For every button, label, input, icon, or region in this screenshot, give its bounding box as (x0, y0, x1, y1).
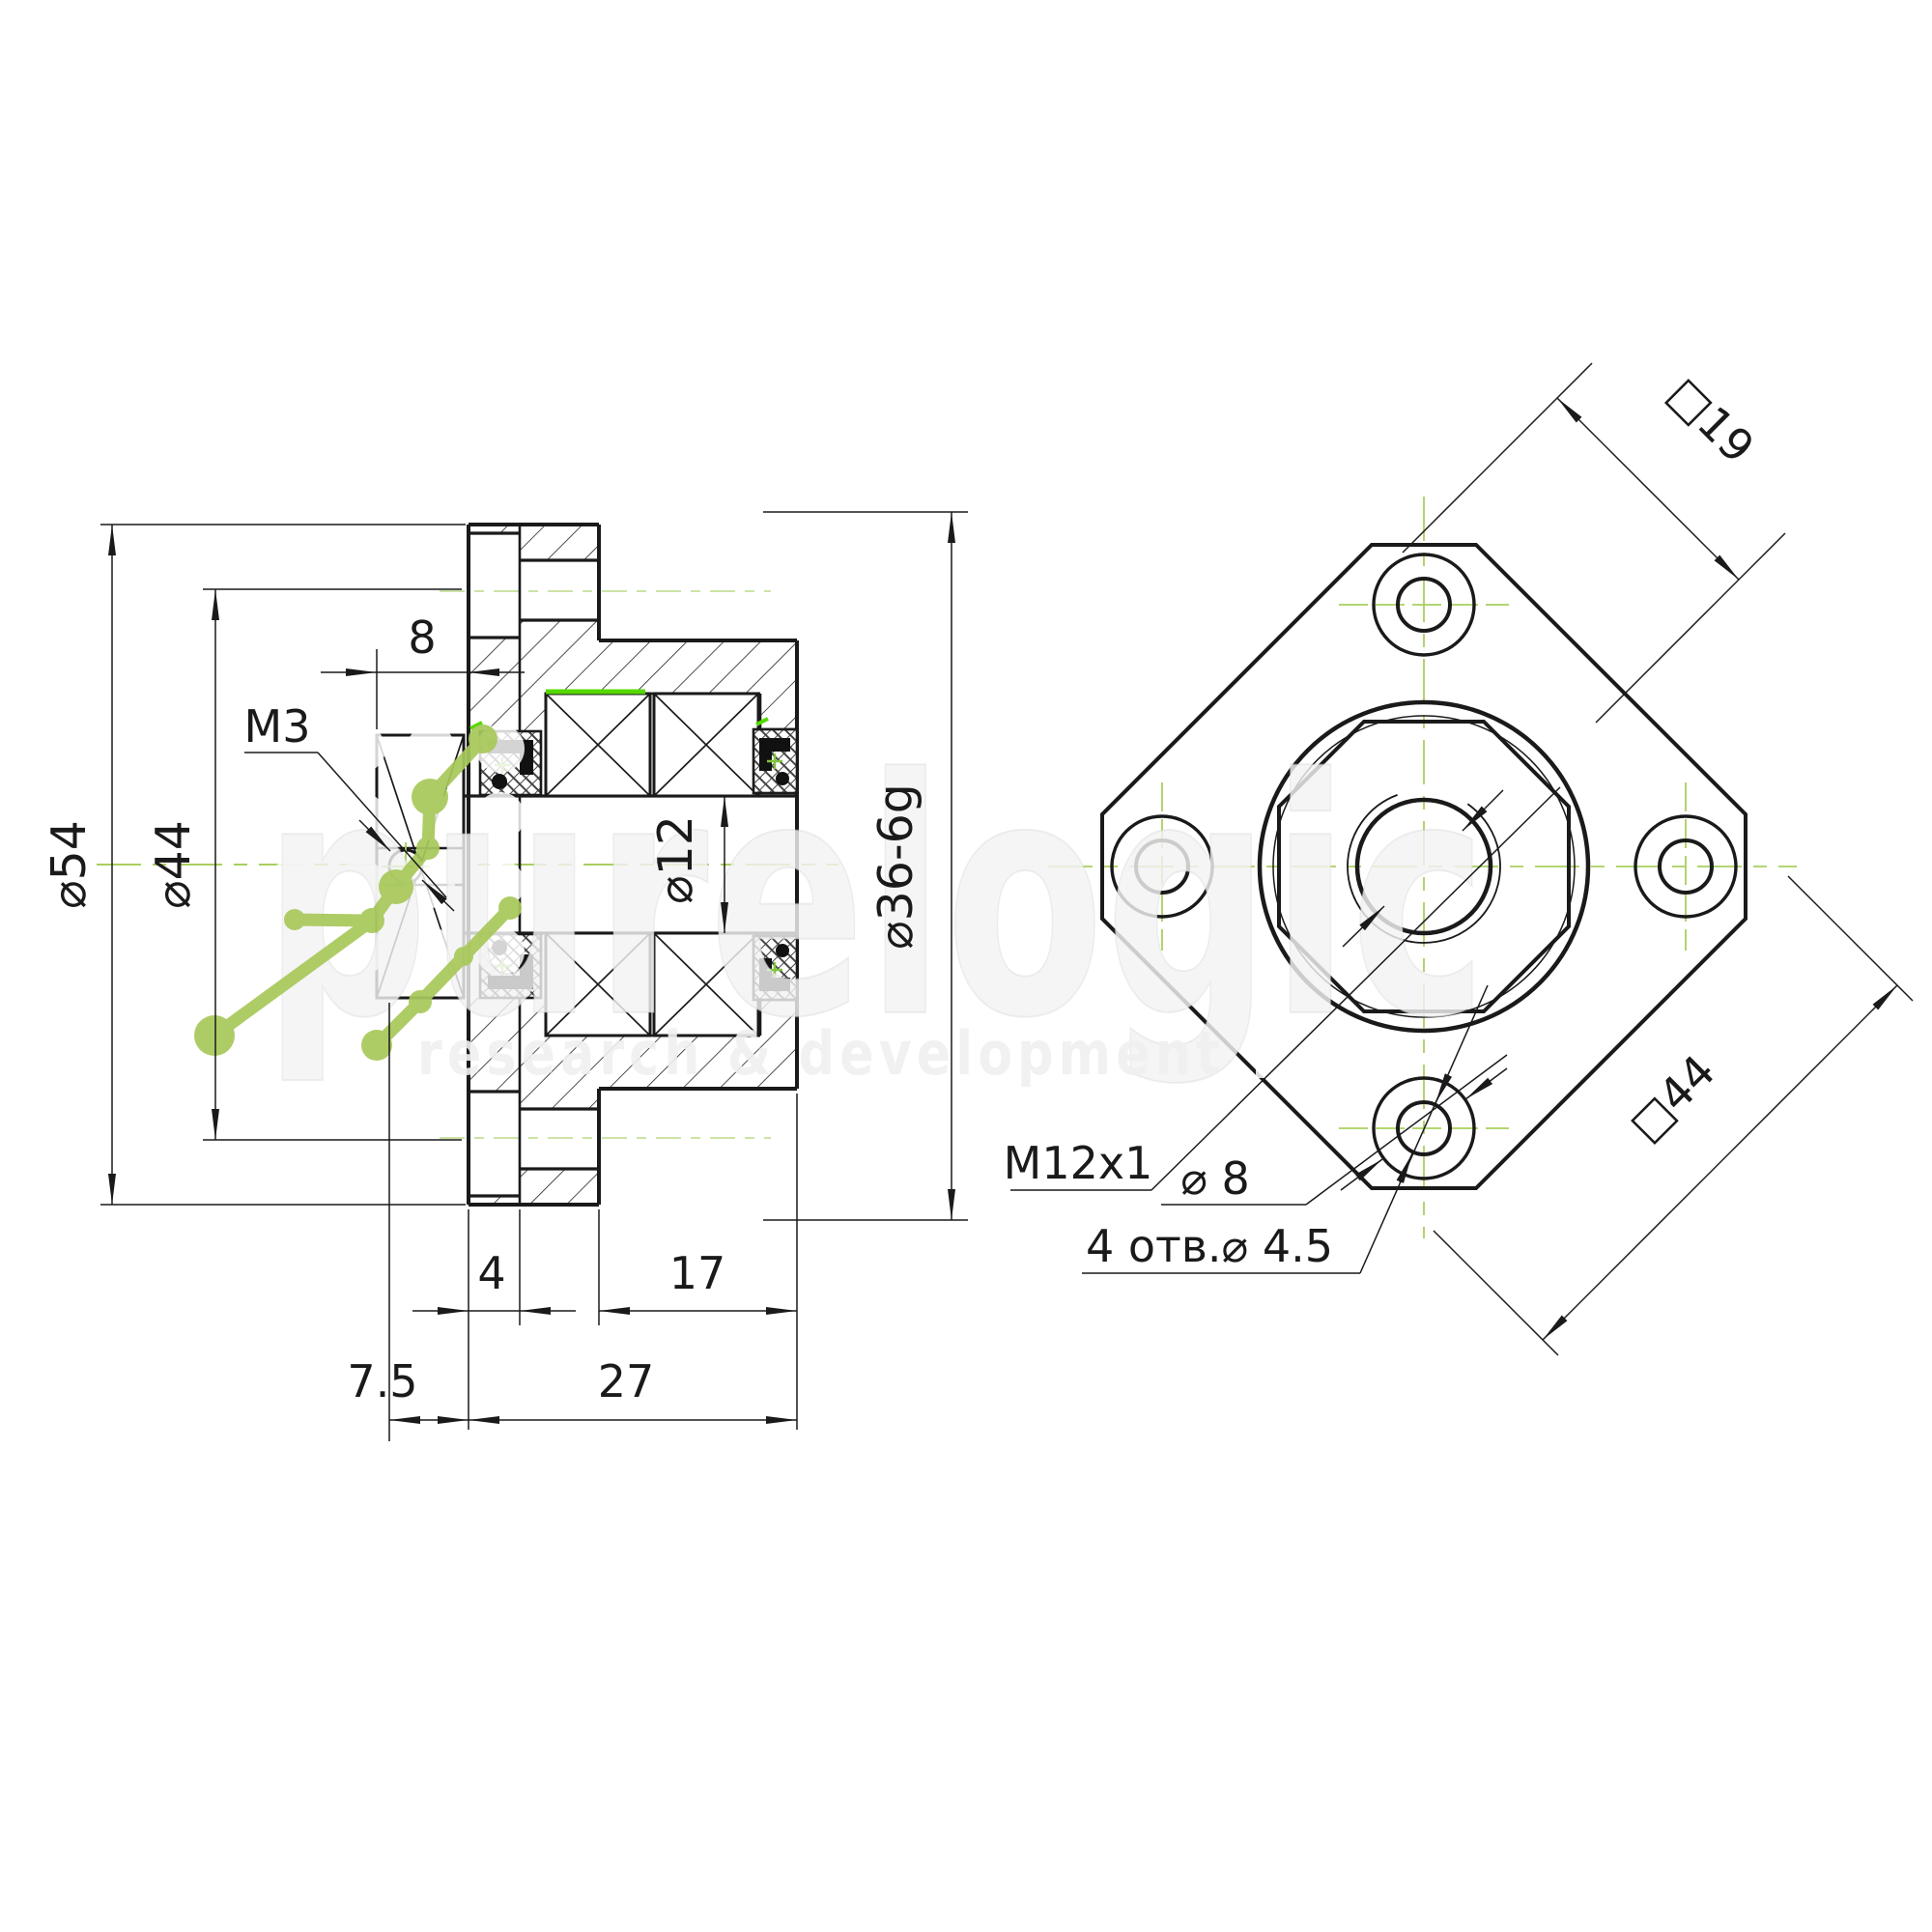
label-dia54: ⌀54 (42, 820, 97, 909)
label-dia12: ⌀12 (648, 815, 703, 904)
technical-drawing: purelogic research & development (0, 0, 1932, 1932)
label-dia8: ⌀ 8 (1180, 1152, 1250, 1205)
label-75: 7.5 (347, 1355, 417, 1407)
label-27: 27 (598, 1355, 655, 1407)
label-17: 17 (669, 1247, 726, 1299)
label-dia36: ⌀36-6g (868, 783, 923, 950)
drawing-canvas: purelogic research & development (0, 0, 1932, 1932)
watermark-line2: research & development (417, 1018, 1225, 1089)
watermark-block (1256, 1022, 1312, 1078)
label-sq19: □19 (1658, 367, 1764, 473)
label-4: 4 (477, 1247, 505, 1299)
label-m12x1: M12x1 (1004, 1137, 1153, 1189)
watermark: purelogic research & development (194, 709, 1488, 1090)
label-8: 8 (408, 611, 436, 664)
label-holes45: 4 отв.⌀ 4.5 (1086, 1220, 1333, 1272)
label-sq44: □44 (1619, 1045, 1725, 1151)
label-dia44: ⌀44 (146, 820, 201, 909)
label-m3: M3 (244, 700, 311, 753)
